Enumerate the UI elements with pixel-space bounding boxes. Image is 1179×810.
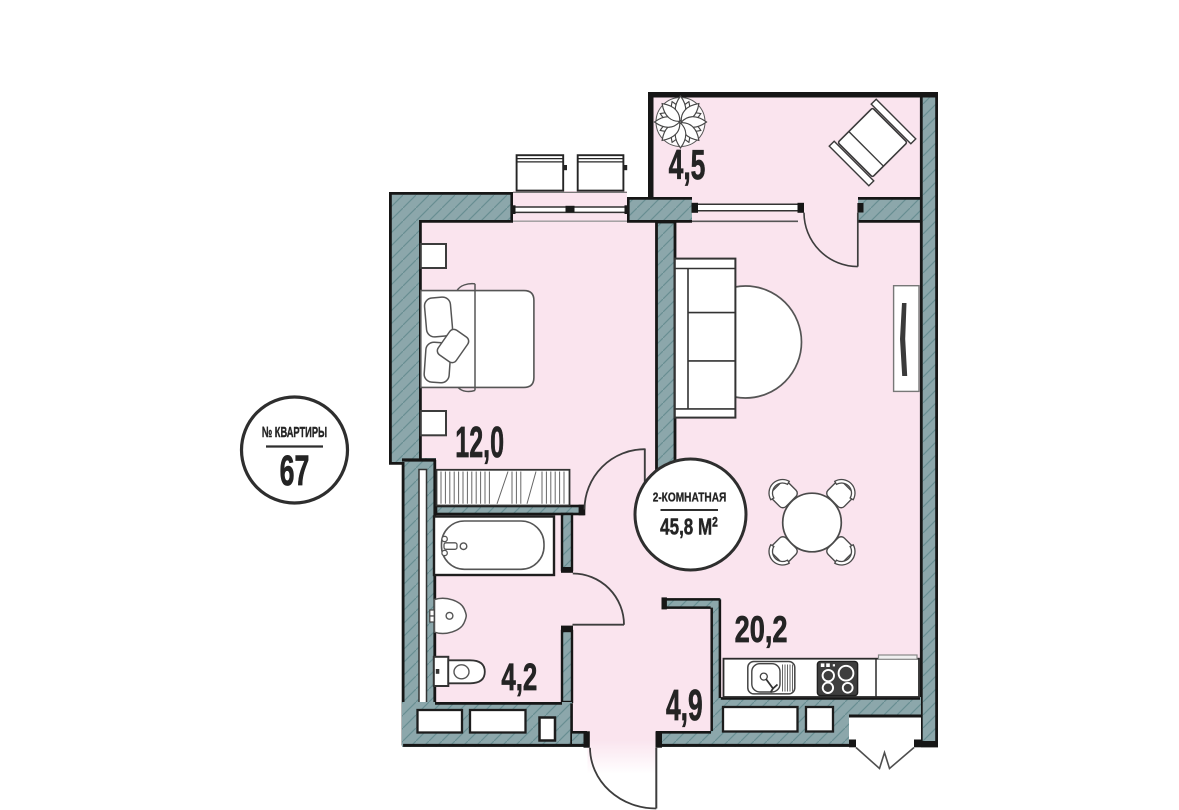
svg-text:45,8 М2: 45,8 М2 xyxy=(660,514,718,540)
svg-text:4,5: 4,5 xyxy=(669,142,706,189)
svg-text:2-КОМНАТНАЯ: 2-КОМНАТНАЯ xyxy=(653,491,727,504)
svg-text:20,2: 20,2 xyxy=(735,609,788,650)
svg-text:67: 67 xyxy=(280,447,310,495)
svg-text:4,2: 4,2 xyxy=(501,656,537,698)
svg-text:4,9: 4,9 xyxy=(666,680,703,730)
svg-text:12,0: 12,0 xyxy=(455,417,504,466)
svg-text:№ КВАРТИРЫ: № КВАРТИРЫ xyxy=(262,424,327,441)
